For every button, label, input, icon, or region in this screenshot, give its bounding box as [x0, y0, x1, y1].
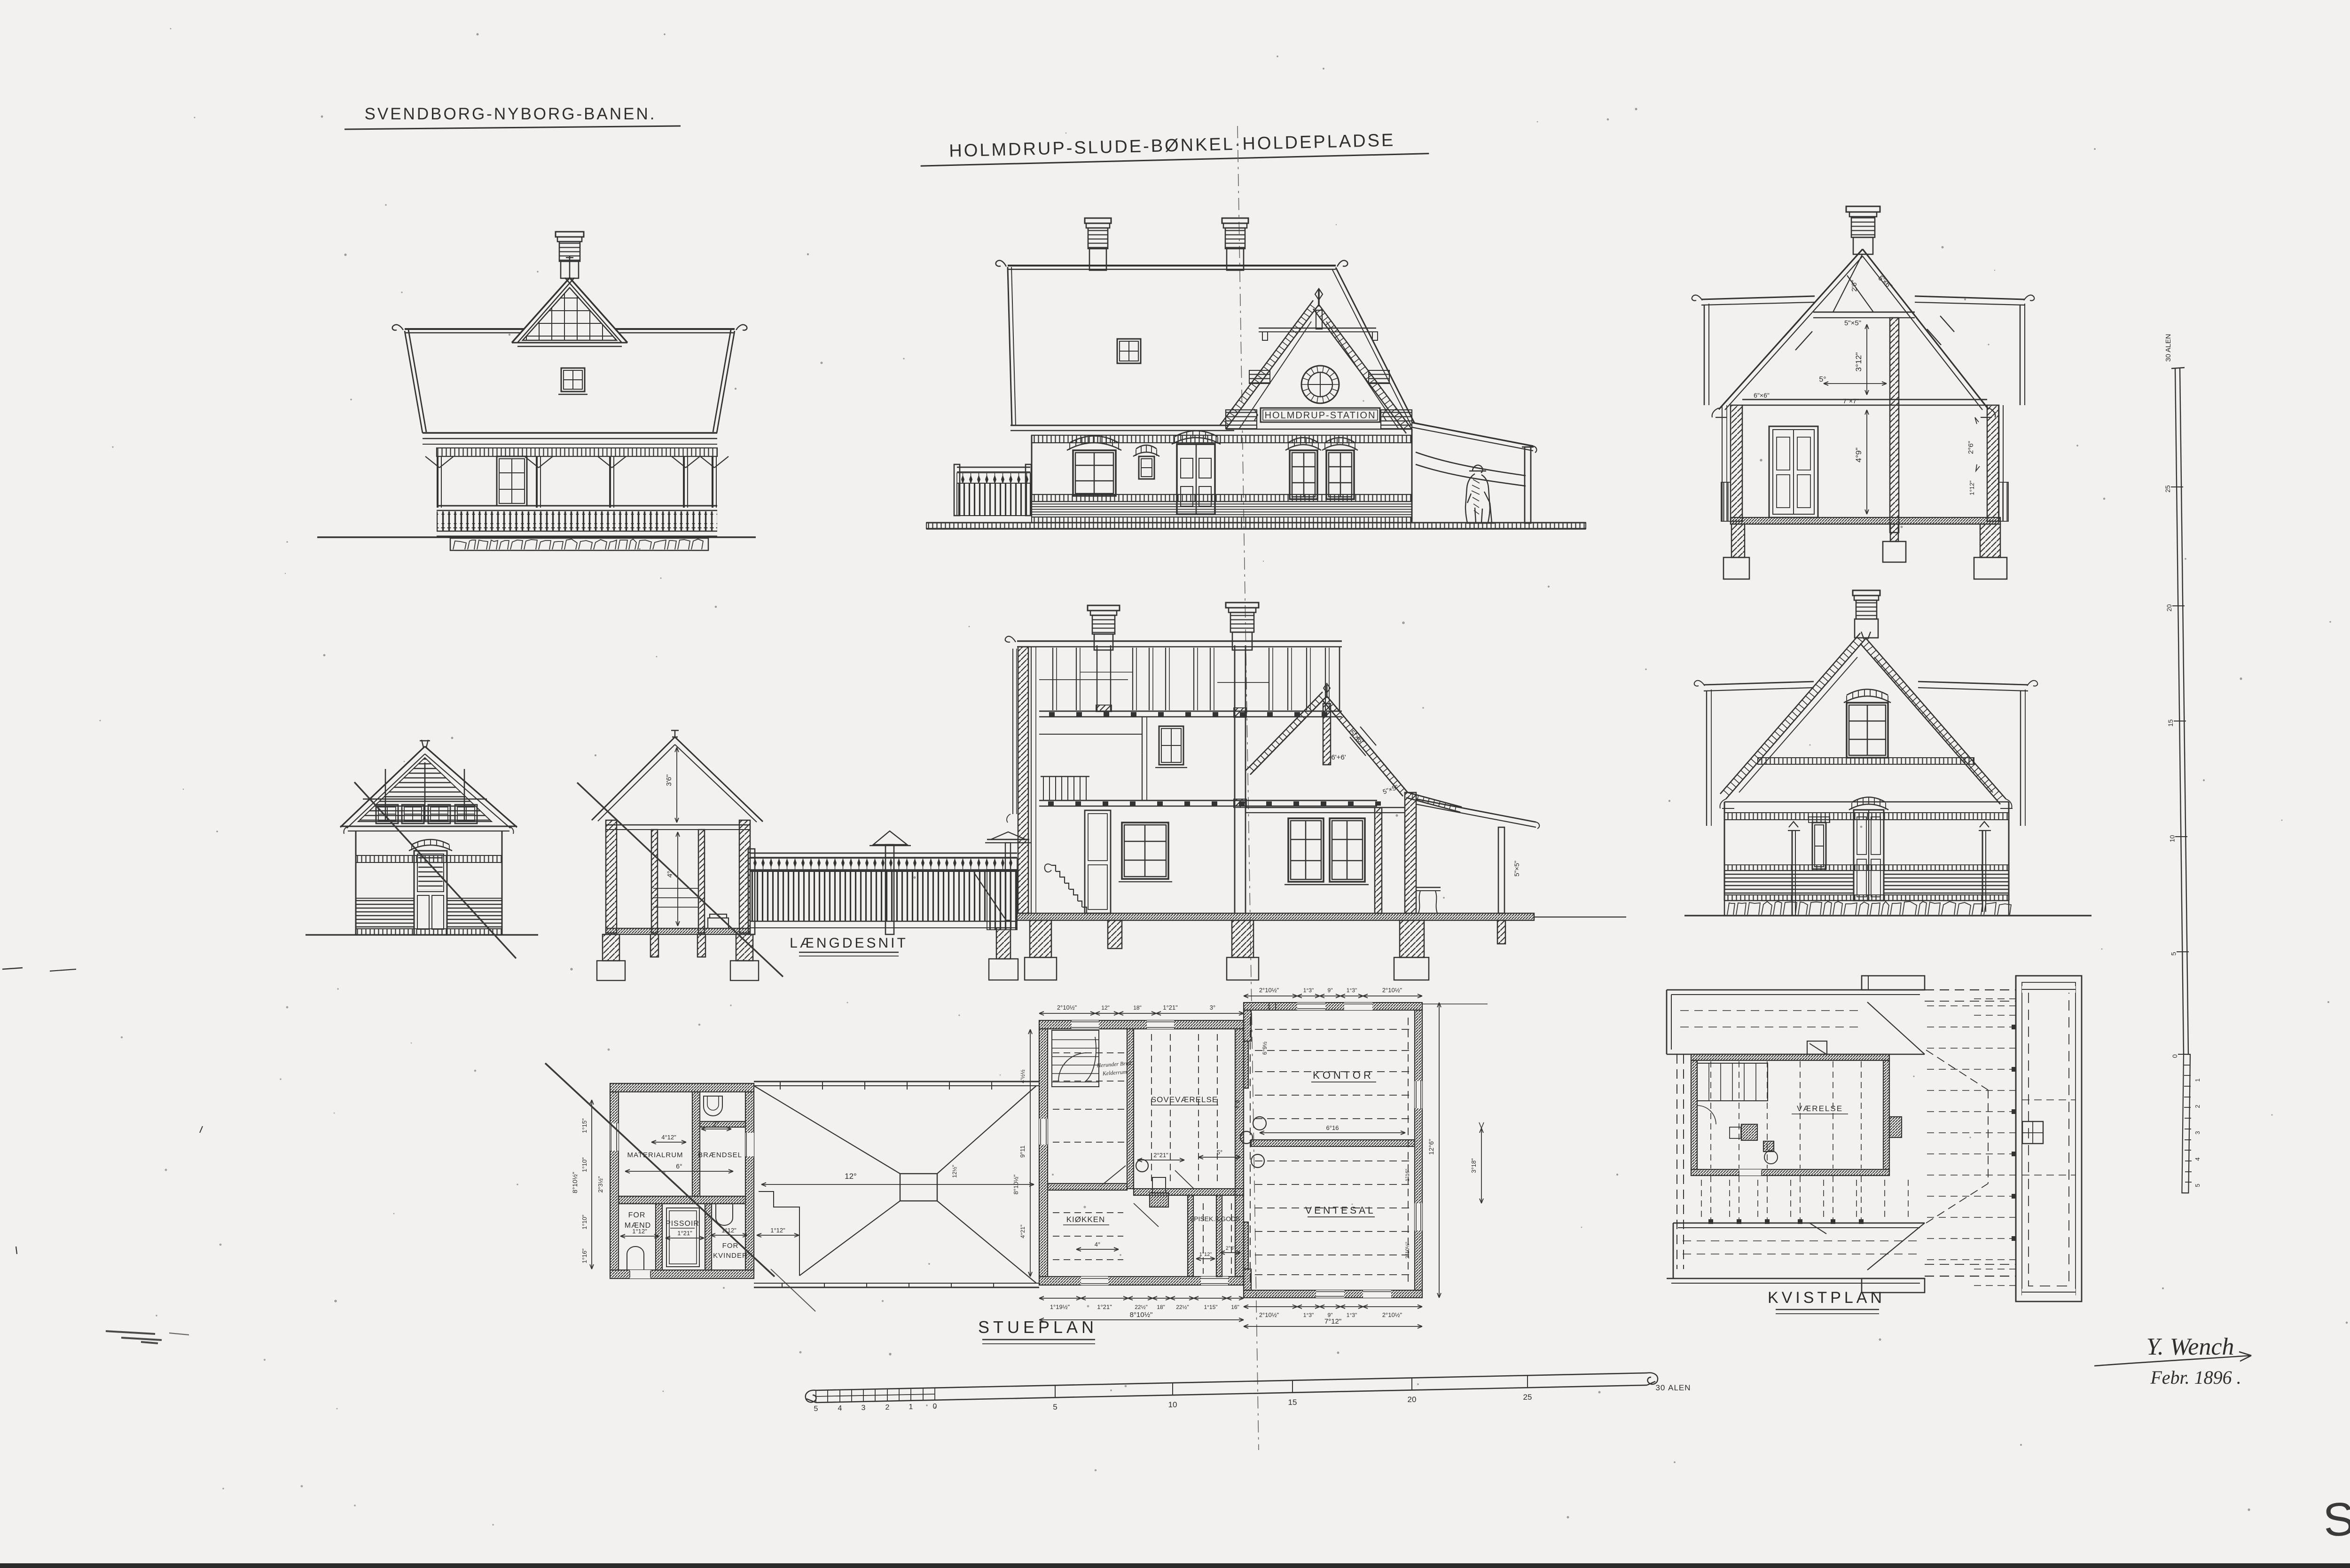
svg-text:7"×7": 7"×7"	[1843, 397, 1859, 405]
svg-text:6°16: 6°16	[1326, 1124, 1339, 1131]
svg-text:1°3": 1°3"	[1347, 1312, 1357, 1318]
svg-text:15: 15	[2167, 719, 2174, 727]
svg-text:2°3½": 2°3½"	[597, 1176, 604, 1193]
svg-text:1°19½": 1°19½"	[1050, 1303, 1070, 1310]
svg-text:KVINDER: KVINDER	[713, 1252, 748, 1260]
svg-text:2: 2	[2194, 1105, 2201, 1108]
svg-text:1°10": 1°10"	[581, 1157, 588, 1172]
svg-text:SPISEK.: SPISEK.	[1190, 1215, 1215, 1223]
svg-text:1°16": 1°16"	[1405, 1169, 1410, 1182]
svg-text:4'½½: 4'½½	[1019, 1070, 1026, 1083]
svg-text:1°12": 1°12"	[770, 1227, 785, 1234]
svg-text:10: 10	[1168, 1400, 1177, 1409]
svg-text:VENTESAL: VENTESAL	[1305, 1205, 1376, 1216]
svg-text:4: 4	[2194, 1157, 2201, 1160]
svg-text:12°: 12°	[845, 1172, 857, 1181]
svg-text:3: 3	[2194, 1131, 2201, 1134]
svg-text:5: 5	[814, 1405, 818, 1413]
svg-text:10: 10	[2168, 835, 2176, 842]
svg-text:2°10½": 2°10½"	[1382, 1311, 1402, 1318]
svg-text:30 ALEN: 30 ALEN	[1655, 1383, 1691, 1392]
svg-text:0: 0	[933, 1403, 937, 1411]
svg-text:2°10½": 2°10½"	[1057, 1004, 1077, 1011]
svg-text:12°6": 12°6"	[1427, 1139, 1435, 1155]
svg-text:BRÆNDSEL: BRÆNDSEL	[698, 1151, 742, 1159]
svg-text:8°10½": 8°10½"	[571, 1172, 579, 1193]
svg-text:25: 25	[2164, 485, 2171, 493]
svg-text:30 ALEN: 30 ALEN	[2164, 334, 2172, 361]
svg-text:1°15": 1°15"	[1204, 1304, 1217, 1310]
svg-text:1°10": 1°10"	[581, 1215, 588, 1230]
svg-text:3°: 3°	[1210, 1004, 1215, 1011]
svg-text:2°10½": 2°10½"	[1405, 1242, 1410, 1259]
svg-text:2°10½": 2°10½"	[1259, 1311, 1279, 1318]
svg-text:HOLMDRUP-STATION: HOLMDRUP-STATION	[1265, 410, 1376, 421]
svg-text:5"×5": 5"×5"	[1844, 319, 1861, 327]
svg-text:2°6": 2°6"	[1226, 1246, 1236, 1251]
svg-text:3'6": 3'6"	[665, 775, 673, 786]
svg-text:1: 1	[2194, 1078, 2201, 1082]
svg-text:1°3": 1°3"	[1303, 1312, 1314, 1318]
svg-text:PISSOIR: PISSOIR	[666, 1220, 699, 1228]
svg-text:FOR: FOR	[722, 1242, 739, 1250]
svg-text:4°9": 4°9"	[1854, 447, 1863, 463]
svg-text:9": 9"	[1328, 987, 1333, 994]
svg-text:5: 5	[2170, 952, 2177, 956]
svg-text:1°15": 1°15"	[581, 1118, 588, 1133]
svg-text:1: 1	[909, 1403, 913, 1411]
svg-text:VÆRELSE: VÆRELSE	[1797, 1104, 1843, 1113]
svg-text:1°21": 1°21"	[1163, 1004, 1178, 1011]
svg-text:1°12": 1°12"	[1968, 480, 1975, 495]
svg-text:15: 15	[1288, 1398, 1297, 1407]
svg-text:16": 16"	[1231, 1304, 1239, 1310]
svg-text:Febr. 1896 .: Febr. 1896 .	[2150, 1367, 2241, 1388]
svg-text:5°: 5°	[1819, 376, 1826, 384]
svg-text:9°11: 9°11	[1019, 1145, 1026, 1158]
svg-text:5: 5	[1053, 1403, 1057, 1411]
svg-text:FOR: FOR	[628, 1211, 646, 1219]
svg-text:ILGODS: ILGODS	[1215, 1215, 1240, 1223]
svg-text:KONTOR: KONTOR	[1313, 1069, 1374, 1081]
svg-text:1°16": 1°16"	[581, 1248, 588, 1263]
svg-text:18": 18"	[1157, 1304, 1165, 1310]
svg-text:22½": 22½"	[1176, 1304, 1189, 1310]
svg-text:2°: 2°	[713, 1120, 719, 1128]
svg-text:6"×6": 6"×6"	[1754, 392, 1770, 399]
svg-text:LÆNGDESNIT: LÆNGDESNIT	[790, 935, 908, 951]
svg-text:1°12": 1°12"	[1199, 1252, 1212, 1257]
svg-text:1°12": 1°12"	[632, 1228, 647, 1235]
svg-text:6°: 6°	[676, 1162, 682, 1170]
svg-text:6°9½: 6°9½	[1261, 1042, 1268, 1055]
svg-text:0: 0	[2171, 1054, 2178, 1058]
svg-text:Y. Wench: Y. Wench	[2146, 1333, 2234, 1360]
svg-text:1°3": 1°3"	[1347, 987, 1357, 994]
svg-text:4°21": 4°21"	[1019, 1224, 1026, 1238]
svg-text:12½": 12½"	[951, 1165, 958, 1178]
svg-text:3°12": 3°12"	[1854, 352, 1863, 371]
svg-text:SOVEVÆRELSE: SOVEVÆRELSE	[1151, 1095, 1218, 1104]
svg-text:4°12": 4°12"	[661, 1134, 676, 1141]
svg-text:2°6": 2°6"	[1967, 441, 1975, 454]
svg-text:5: 5	[2194, 1184, 2201, 1187]
svg-text:7°12": 7°12"	[1324, 1317, 1341, 1325]
svg-text:5"×5": 5"×5"	[1513, 861, 1520, 877]
svg-text:6'+6': 6'+6'	[1331, 753, 1346, 761]
svg-text:2: 2	[885, 1403, 890, 1411]
svg-text:4°: 4°	[1095, 1241, 1100, 1248]
svg-text:12": 12"	[1101, 1004, 1110, 1011]
svg-text:2°10½": 2°10½"	[1382, 987, 1402, 994]
svg-text:22½": 22½"	[1135, 1304, 1148, 1310]
svg-text:KIØKKEN: KIØKKEN	[1066, 1215, 1105, 1224]
svg-text:5°: 5°	[1217, 1149, 1222, 1156]
svg-text:1°21": 1°21"	[1097, 1303, 1112, 1310]
svg-text:20: 20	[2165, 604, 2173, 612]
svg-text:1°3": 1°3"	[1303, 987, 1314, 994]
svg-text:MATERIALRUM: MATERIALRUM	[627, 1151, 683, 1159]
svg-text:STUEPLAN: STUEPLAN	[978, 1317, 1097, 1337]
svg-text:3: 3	[862, 1404, 866, 1412]
svg-text:SNB: SNB	[2321, 1488, 2350, 1547]
svg-text:18": 18"	[1133, 1004, 1142, 1011]
svg-text:1°21": 1°21"	[677, 1230, 692, 1237]
svg-text:8°10½": 8°10½"	[1012, 1174, 1019, 1194]
svg-text:25: 25	[1523, 1393, 1532, 1402]
svg-text:2°10½": 2°10½"	[1259, 987, 1279, 994]
svg-text:8°10½": 8°10½"	[1130, 1311, 1153, 1319]
svg-text:3°18": 3°18"	[1470, 1158, 1477, 1173]
svg-text:KVISTPLAN: KVISTPLAN	[1768, 1289, 1885, 1307]
svg-text:2°21": 2°21"	[1153, 1152, 1168, 1159]
svg-text:2'6": 2'6"	[1850, 280, 1858, 292]
svg-text:20: 20	[1408, 1395, 1417, 1404]
svg-text:4: 4	[838, 1404, 842, 1412]
svg-text:SVENDBORG-NYBORG-BANEN.: SVENDBORG-NYBORG-BANEN.	[365, 105, 657, 123]
